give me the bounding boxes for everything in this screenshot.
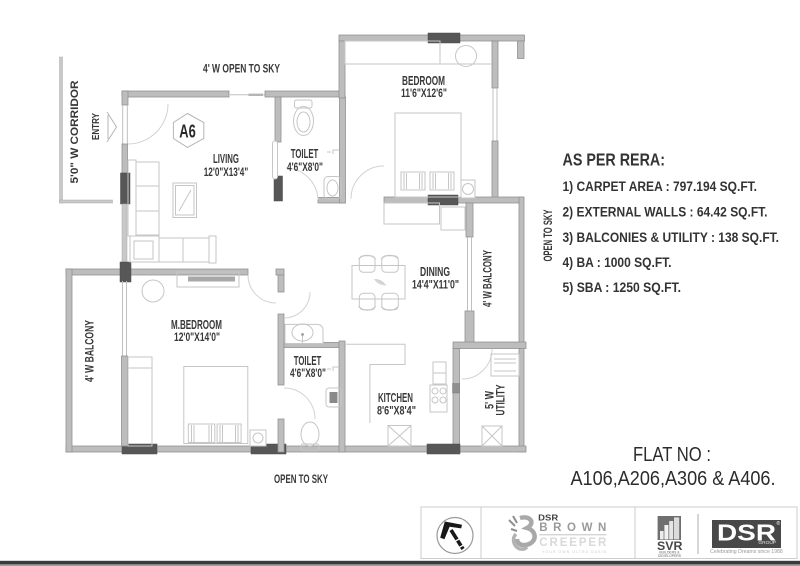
svg-text:A6: A6 bbox=[179, 122, 196, 142]
svg-text:12'0"X14'0": 12'0"X14'0" bbox=[174, 330, 220, 344]
svg-text:1) CARPET AREA : 797.194 SQ.FT: 1) CARPET AREA : 797.194 SQ.FT. bbox=[563, 179, 758, 194]
svg-text:GROUP: GROUP bbox=[758, 540, 776, 546]
svg-text:4'6"X8'0": 4'6"X8'0" bbox=[290, 366, 326, 380]
svg-text:YOUR OWN ULTRA OASIS: YOUR OWN ULTRA OASIS bbox=[542, 550, 607, 554]
svg-text:TOILET: TOILET bbox=[291, 146, 319, 161]
svg-text:3) BALCONIES & UTILITY : 138 S: 3) BALCONIES & UTILITY : 138 SQ.FT. bbox=[563, 230, 780, 245]
svg-text:4' W OPEN TO SKY: 4' W OPEN TO SKY bbox=[203, 62, 280, 76]
svg-text:AS PER RERA:: AS PER RERA: bbox=[563, 150, 666, 170]
svg-text:12'0"X13'4": 12'0"X13'4" bbox=[204, 165, 249, 179]
svg-text:4' W BALCONY: 4' W BALCONY bbox=[83, 320, 97, 382]
svg-text:4' W BALCONY: 4' W BALCONY bbox=[481, 250, 495, 307]
svg-text:Celebrating Dreams since 1988: Celebrating Dreams since 1988 bbox=[710, 549, 783, 555]
svg-text:5) SBA : 1250 SQ.FT.: 5) SBA : 1250 SQ.FT. bbox=[563, 280, 682, 295]
svg-text:4) BA : 1000 SQ.FT.: 4) BA : 1000 SQ.FT. bbox=[563, 255, 672, 270]
svg-text:DSR: DSR bbox=[538, 513, 558, 523]
svg-text:A106,A206,A306 & A406.: A106,A206,A306 & A406. bbox=[571, 467, 776, 490]
svg-text:DEVELOPERS: DEVELOPERS bbox=[658, 554, 682, 558]
svg-text:11'6"X12'6": 11'6"X12'6" bbox=[401, 86, 447, 100]
svg-text:4'6"X8'0": 4'6"X8'0" bbox=[287, 160, 323, 174]
svg-text:8'6"X8'4": 8'6"X8'4" bbox=[377, 404, 416, 418]
svg-text:FLAT NO :: FLAT NO : bbox=[633, 443, 711, 466]
svg-text:OPEN TO SKY: OPEN TO SKY bbox=[541, 210, 555, 262]
svg-text:14'4"X11'0": 14'4"X11'0" bbox=[412, 278, 459, 292]
svg-text:2) EXTERNAL WALLS : 64.42 SQ.F: 2) EXTERNAL WALLS : 64.42 SQ.FT. bbox=[563, 205, 768, 220]
svg-text:®: ® bbox=[777, 520, 781, 527]
svg-text:OPEN TO SKY: OPEN TO SKY bbox=[274, 472, 328, 486]
svg-text:UTILITY: UTILITY bbox=[494, 385, 508, 416]
svg-text:5'0" W CORRIDOR: 5'0" W CORRIDOR bbox=[69, 80, 81, 183]
svg-text:LIVING: LIVING bbox=[213, 151, 239, 166]
svg-text:ENTRY: ENTRY bbox=[90, 113, 102, 140]
